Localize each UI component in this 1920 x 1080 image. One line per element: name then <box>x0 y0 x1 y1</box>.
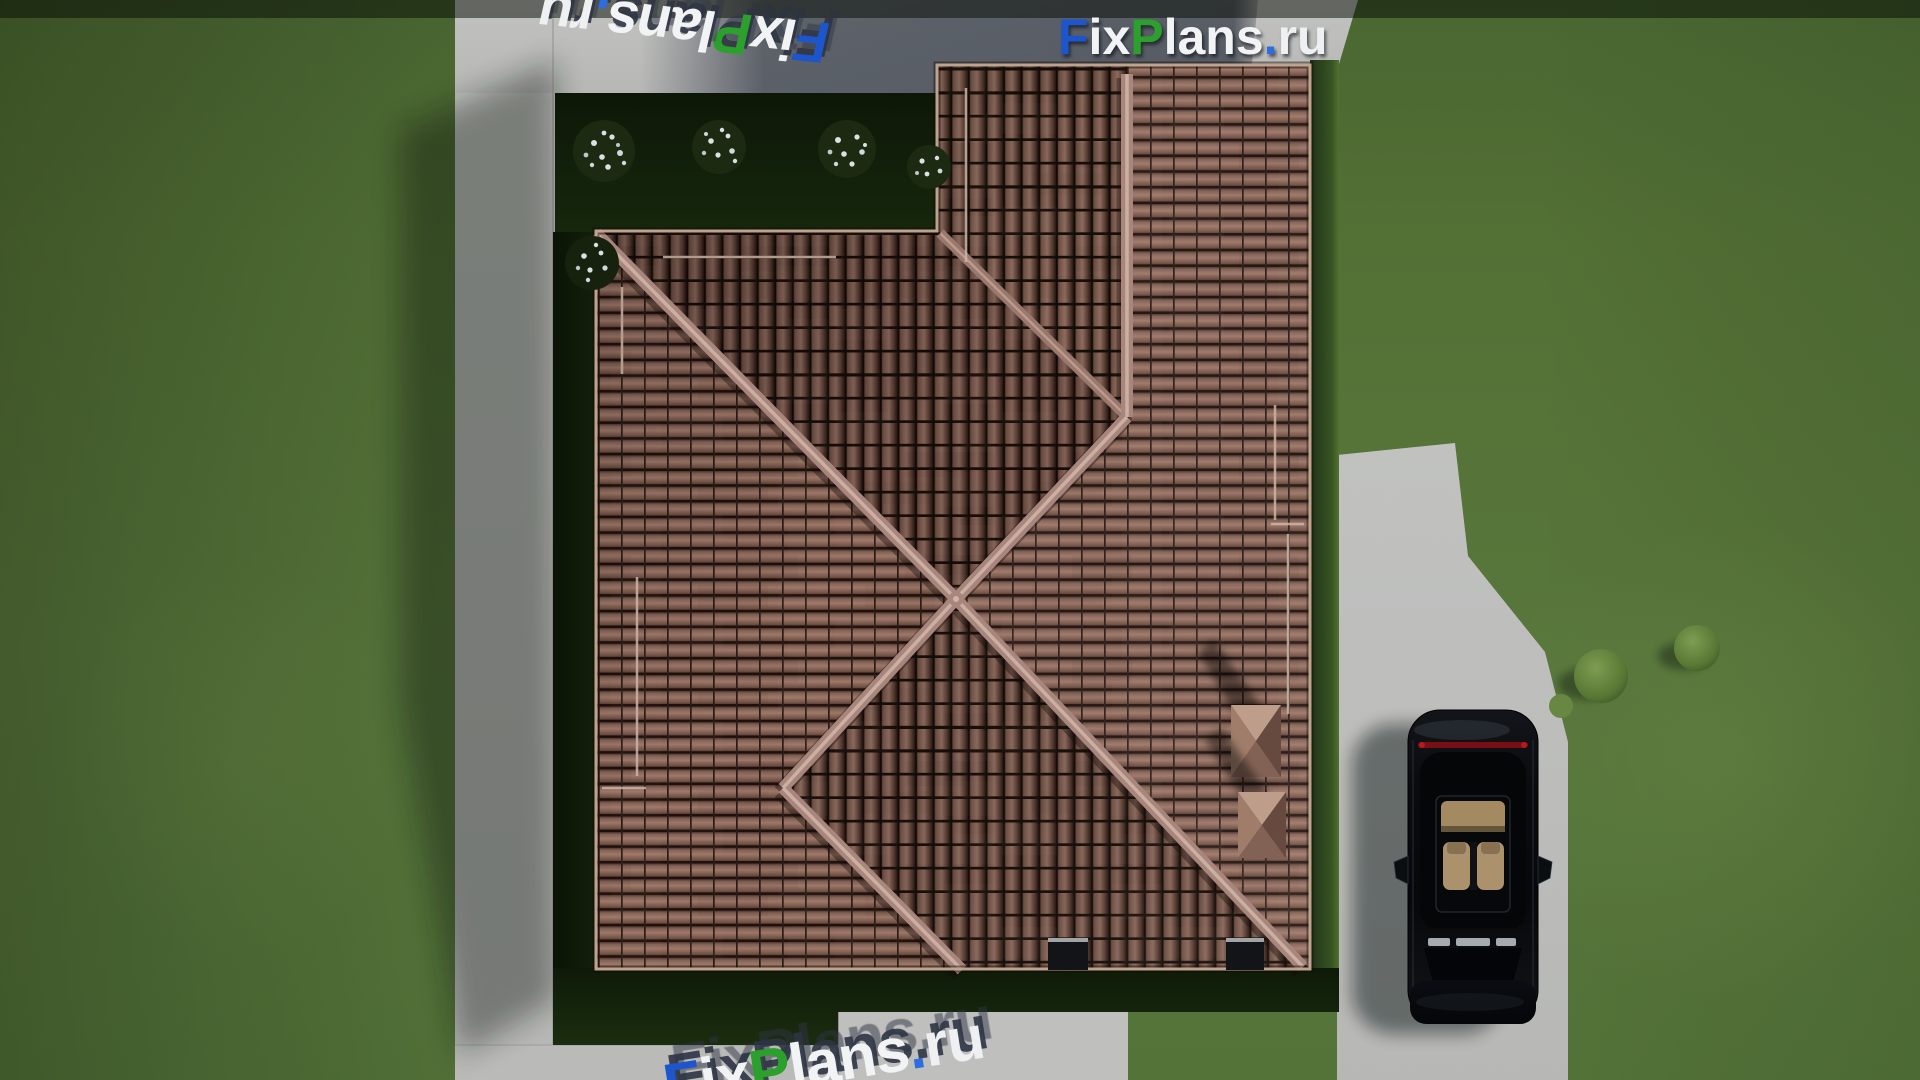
render-viewport: FixPlans.ru FixPlans.ru FixPlans.ru <box>0 0 1920 1080</box>
scene-svg <box>0 0 1920 1080</box>
render-grain <box>0 0 1920 1080</box>
